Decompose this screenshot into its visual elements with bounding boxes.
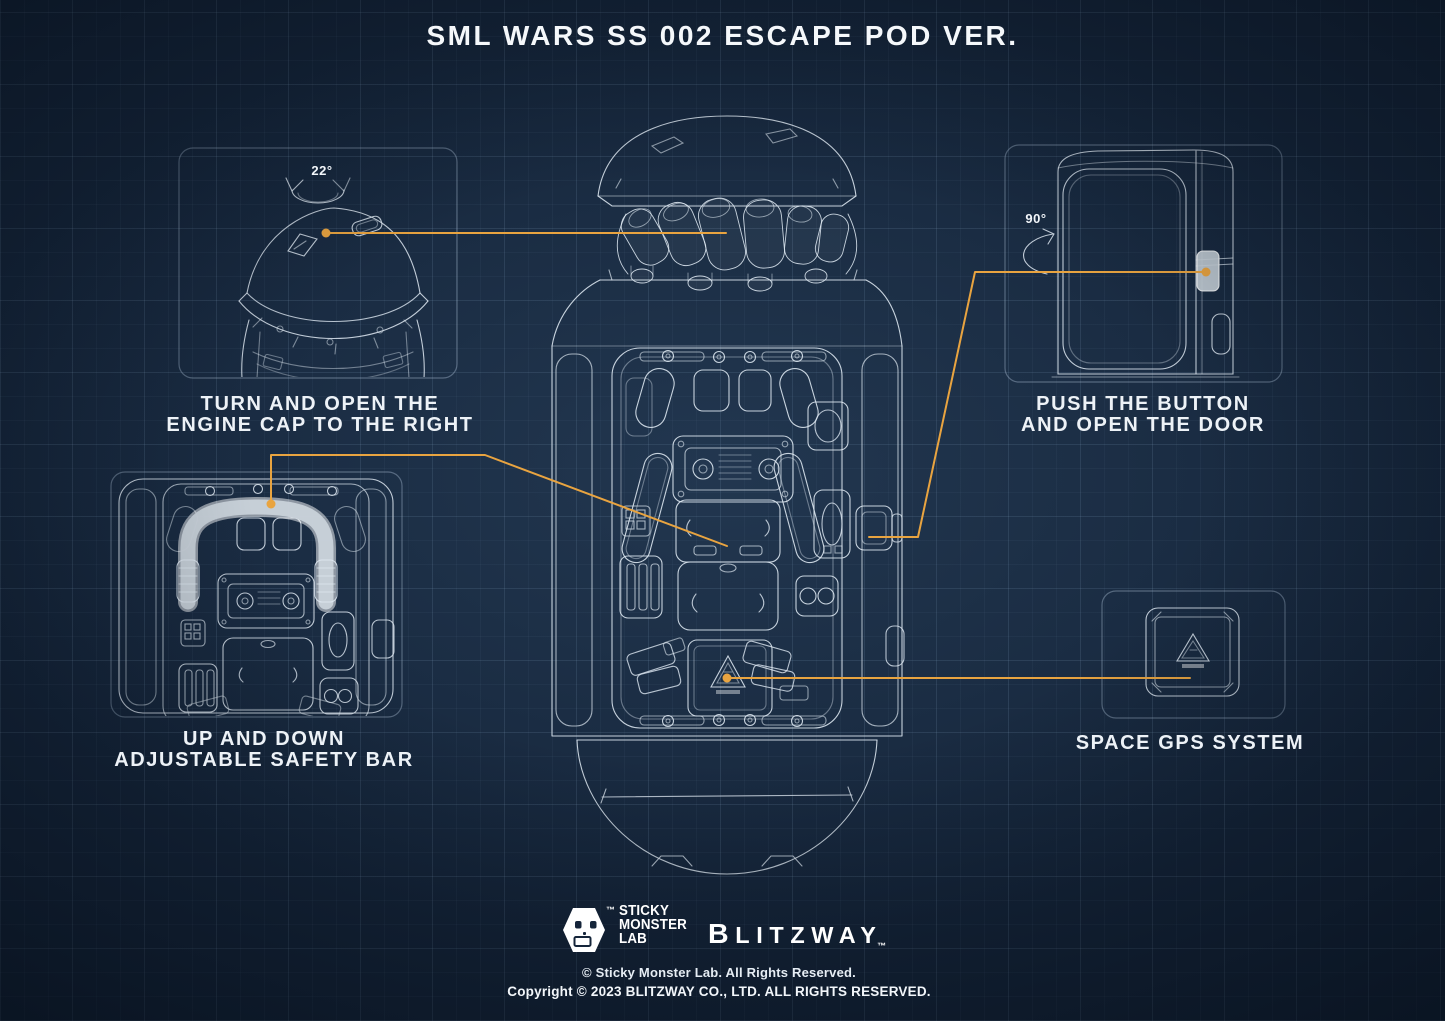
monster-face-icon — [563, 908, 605, 952]
engine-cap-caption: TURN AND OPEN THE ENGINE CAP TO THE RIGH… — [166, 394, 473, 436]
callout-dot-door-button — [1202, 268, 1211, 277]
callout-line-safety-bar — [267, 455, 728, 546]
door-detail-box — [1005, 145, 1282, 382]
callout-dot-gps — [723, 674, 732, 683]
gps-detail-box — [1102, 591, 1285, 718]
blueprint-poster: SML WARS SS 002 ESCAPE POD VER. 22° 90° … — [0, 0, 1445, 1021]
copyright-blitzway: Copyright © 2023 BLITZWAY CO., LTD. ALL … — [507, 984, 930, 999]
sml-wordmark-line2: MONSTER — [619, 918, 687, 932]
safety-bar-caption-line1: UP AND DOWN — [114, 729, 414, 750]
engine-cap-caption-line2: ENGINE CAP TO THE RIGHT — [166, 415, 473, 436]
escape-pod-drawing — [552, 116, 904, 874]
pod-door-latch — [856, 506, 902, 550]
rotation-arrow-22-icon — [286, 178, 350, 203]
pod-engine-cluster — [616, 194, 857, 291]
sml-wordmark: STICKY MONSTER LAB — [619, 904, 687, 946]
blitzway-wordmark: BLITZWAY — [708, 918, 882, 950]
rotation-angle-label-22: 22° — [311, 163, 332, 178]
pod-dome-cap — [598, 116, 856, 206]
rotation-angle-label-90: 90° — [1025, 211, 1046, 226]
engine-cap-caption-line1: TURN AND OPEN THE — [166, 394, 473, 415]
door-button-caption-line2: AND OPEN THE DOOR — [1021, 415, 1265, 436]
sticky-monster-lab-logo — [561, 906, 607, 954]
engine-cap-detail-drawing — [239, 178, 428, 381]
gps-detail-drawing — [1146, 608, 1239, 696]
sml-wordmark-line1: STICKY — [619, 904, 687, 918]
safety-bar-highlight — [188, 507, 326, 602]
gps-caption-line1: SPACE GPS SYSTEM — [1076, 733, 1305, 754]
footer: ™ STICKY MONSTER LAB BLITZWAY™ — [0, 900, 1445, 960]
door-button-caption-line1: PUSH THE BUTTON — [1021, 394, 1265, 415]
blitzway-logo: BLITZWAY™ — [708, 918, 886, 951]
rotation-arrow-90-icon — [1024, 229, 1054, 274]
safety-bar-caption-line2: ADJUSTABLE SAFETY BAR — [114, 750, 414, 771]
callout-dot-engine-cap — [322, 229, 331, 238]
sml-trademark: ™ — [606, 905, 615, 915]
engine-cap-detail-box — [179, 148, 457, 378]
blueprint-line-art — [0, 0, 1445, 1021]
page-title: SML WARS SS 002 ESCAPE POD VER. — [426, 20, 1018, 52]
callout-dot-safety-bar — [267, 500, 276, 509]
pod-bottom-dome — [577, 740, 877, 874]
door-detail-drawing — [1024, 150, 1239, 377]
copyright-sml: © Sticky Monster Lab. All Rights Reserve… — [582, 965, 856, 980]
sml-wordmark-line3: LAB — [619, 932, 687, 946]
safety-bar-detail-drawing — [119, 479, 394, 724]
safety-bar-caption: UP AND DOWN ADJUSTABLE SAFETY BAR — [114, 729, 414, 771]
door-button-caption: PUSH THE BUTTON AND OPEN THE DOOR — [1021, 394, 1265, 436]
callout-line-gps — [723, 674, 1191, 683]
pod-shoulder — [552, 270, 902, 346]
gps-caption: SPACE GPS SYSTEM — [1076, 733, 1305, 754]
